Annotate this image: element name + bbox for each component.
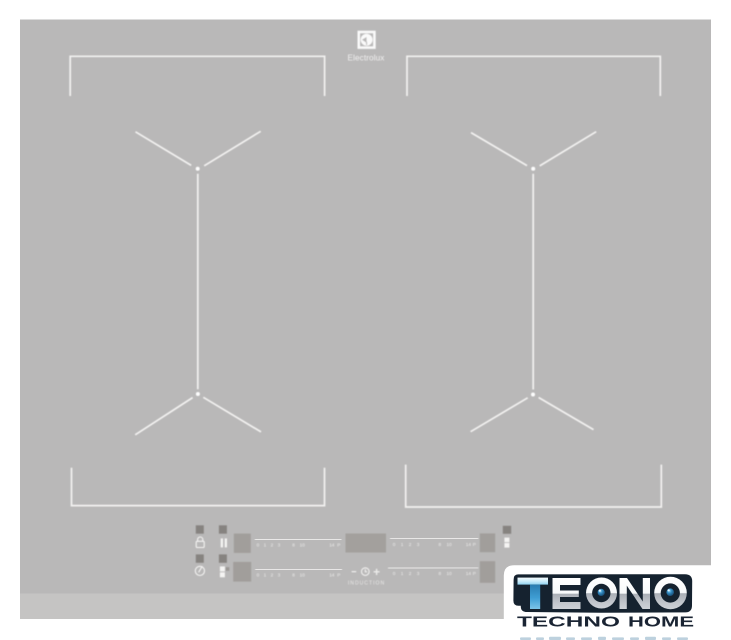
svg-text:INDUCTION: INDUCTION [348, 581, 385, 587]
svg-text:HOME: HOME [628, 614, 694, 631]
svg-text:TECHNO: TECHNO [517, 614, 621, 631]
svg-text:Electrolux: Electrolux [348, 54, 385, 63]
